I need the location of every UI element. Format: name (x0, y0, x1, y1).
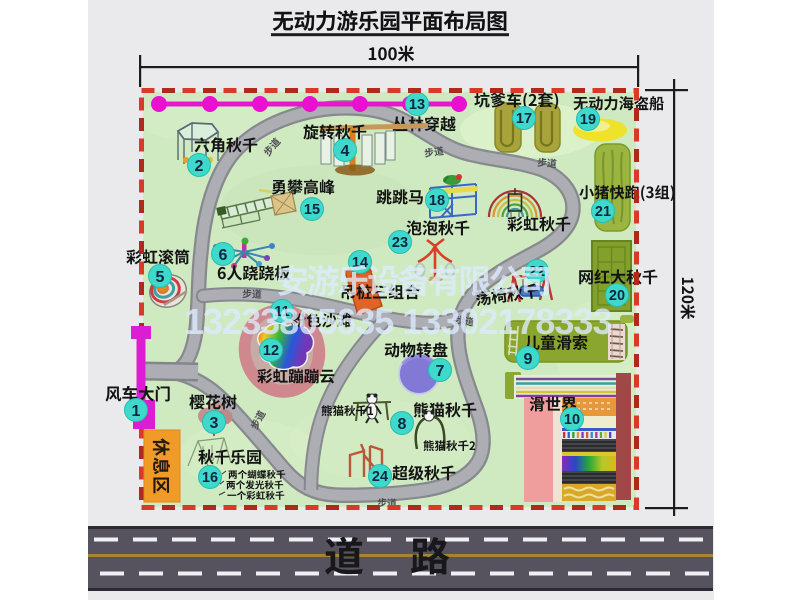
svg-text:22: 22 (529, 264, 545, 280)
svg-text:5: 5 (156, 269, 165, 286)
svg-text:7: 7 (436, 363, 445, 380)
svg-text:4: 4 (341, 143, 350, 160)
svg-text:16: 16 (202, 470, 218, 486)
svg-text:13: 13 (409, 97, 425, 113)
svg-text:18: 18 (429, 193, 445, 209)
svg-text:17: 17 (516, 111, 532, 127)
svg-text:9: 9 (524, 351, 533, 368)
svg-text:24: 24 (372, 469, 388, 485)
svg-text:3: 3 (210, 415, 219, 432)
svg-text:10: 10 (564, 412, 580, 428)
svg-text:23: 23 (392, 235, 408, 251)
svg-text:13233805635 13302178333: 13233805635 13302178333 (184, 301, 611, 342)
svg-text:15: 15 (304, 202, 320, 218)
svg-text:2: 2 (195, 158, 204, 175)
svg-text:12: 12 (263, 343, 279, 359)
svg-text:1: 1 (132, 403, 141, 420)
svg-text:6: 6 (219, 247, 228, 264)
svg-text:8: 8 (398, 416, 407, 433)
svg-text:21: 21 (595, 204, 611, 220)
svg-text:19: 19 (580, 112, 596, 128)
